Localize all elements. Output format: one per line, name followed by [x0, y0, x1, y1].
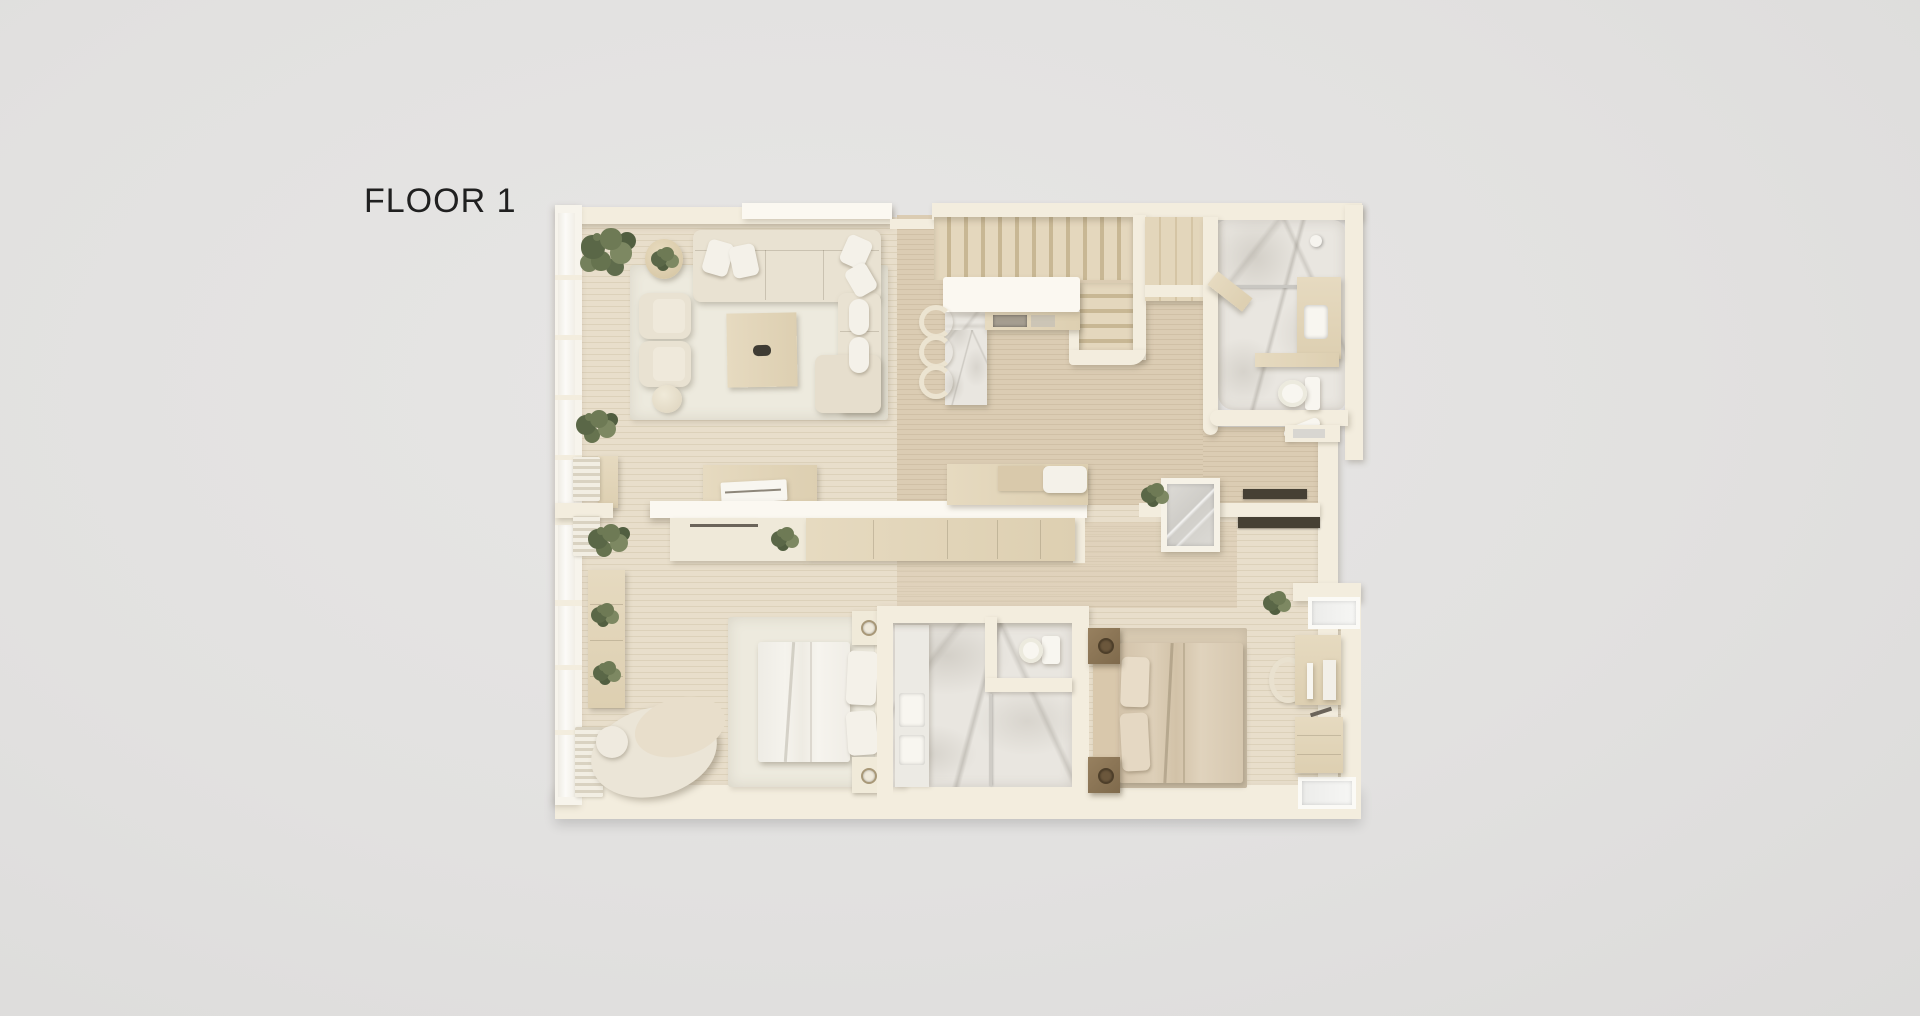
- sofa-bolster: [849, 299, 869, 335]
- vestibule-glass: [1167, 484, 1214, 546]
- shelf-plant: [599, 663, 607, 671]
- cabinet-plant: [777, 529, 785, 537]
- bed2-pillow: [1120, 712, 1151, 771]
- staircase-upper-flight: [934, 217, 1133, 280]
- daybed-mattress: [1043, 466, 1087, 493]
- nightstand-dark: [1088, 757, 1120, 793]
- coffee-table: [726, 312, 797, 387]
- cabinet-handle: [690, 524, 758, 527]
- glass-vestibule: [1161, 478, 1220, 552]
- round-stool: [652, 385, 682, 413]
- toilet-tank: [1305, 377, 1320, 410]
- sideboard: [806, 518, 1075, 561]
- monitor: [1307, 663, 1313, 699]
- toilet2-bowl: [1019, 638, 1043, 663]
- kitchen-sink-inset: [993, 315, 1027, 327]
- floorplan-render: FLOOR 1: [0, 0, 1920, 1016]
- kitchen-inner-shelf: [985, 312, 1080, 330]
- sofa-ottoman: [815, 355, 881, 413]
- cabinet-front: [670, 518, 806, 561]
- daybed-lid: [998, 466, 1044, 491]
- vanity-cabinet: [1297, 277, 1341, 359]
- kitchen-tray: [1031, 315, 1055, 327]
- bathroom2-vanity: [895, 625, 929, 787]
- wardrobe-ledge-inset: [1293, 429, 1325, 438]
- olive-plant: [585, 413, 593, 421]
- bathroom2-wall-right: [1072, 617, 1089, 800]
- nook-window: [1298, 777, 1356, 809]
- bedroom2-plant: [1269, 593, 1277, 601]
- wall-shelf: [588, 570, 625, 708]
- bar-stool: [919, 305, 953, 339]
- nightstand-dark: [1088, 628, 1120, 664]
- sofa-bolster: [849, 337, 869, 373]
- window-mullion: [555, 665, 582, 670]
- top-wall-return: [890, 219, 934, 229]
- armchair: [639, 341, 691, 387]
- kitchen-counter-top: [943, 277, 1080, 312]
- bar-stool: [919, 335, 953, 369]
- side-table: [645, 239, 683, 279]
- top-wall-ledge: [742, 203, 892, 219]
- vestibule-wing-wall: [1139, 503, 1161, 517]
- bed1-pillow: [846, 710, 879, 756]
- shower-head: [1310, 235, 1322, 247]
- bedroom1-plant: [597, 527, 605, 535]
- window-mullion: [555, 600, 582, 606]
- clothes-rod: [1238, 517, 1320, 528]
- shelf-plant: [597, 605, 605, 613]
- shower2-glass-line: [989, 694, 992, 786]
- table-tray: [753, 345, 771, 356]
- nook-window: [1308, 597, 1360, 629]
- wardrobe-ledge: [1285, 425, 1340, 442]
- dresser: [1295, 717, 1343, 773]
- chaise-lounge: [590, 700, 725, 805]
- bed1-duvet: [758, 642, 850, 762]
- toilet2-tank: [1042, 636, 1060, 664]
- armchair: [639, 293, 691, 339]
- corner-plant: [593, 233, 601, 241]
- bathroom2-wall-top: [877, 606, 1089, 623]
- toilet-bowl: [1278, 380, 1307, 407]
- vanity-sink: [899, 735, 925, 765]
- planter-box: [598, 456, 618, 508]
- wardrobe-wall: [1218, 503, 1320, 517]
- bathroom1-wall-bottom: [1210, 410, 1348, 426]
- vanity-sink: [899, 693, 925, 727]
- staircase-lower-flight: [1079, 283, 1133, 353]
- vanity-sink: [1304, 305, 1328, 339]
- radiator: [573, 516, 600, 556]
- window-mullion: [555, 335, 582, 340]
- bar-stool: [919, 365, 953, 399]
- bathroom2-wall-left: [877, 617, 893, 800]
- clothes-rod: [1243, 489, 1307, 499]
- desk-paper: [1323, 660, 1336, 700]
- bathroom2-divider-h: [985, 678, 1072, 692]
- bed1-pillow: [846, 650, 879, 705]
- table-plant: [657, 249, 665, 257]
- window-mullion: [555, 395, 582, 400]
- desk2: [1295, 635, 1341, 705]
- pantry-cap: [1145, 285, 1203, 297]
- bath-shelf: [1255, 353, 1339, 367]
- radiator: [573, 457, 600, 501]
- stair-wall-base: [1069, 350, 1146, 365]
- vestibule-plant: [1147, 485, 1155, 493]
- bed2-pillow: [1120, 657, 1150, 708]
- bathroom1-wall-left: [1203, 217, 1218, 435]
- window-mullion: [555, 275, 582, 280]
- floor-label: FLOOR 1: [364, 184, 516, 218]
- floor-plan: [555, 165, 1365, 830]
